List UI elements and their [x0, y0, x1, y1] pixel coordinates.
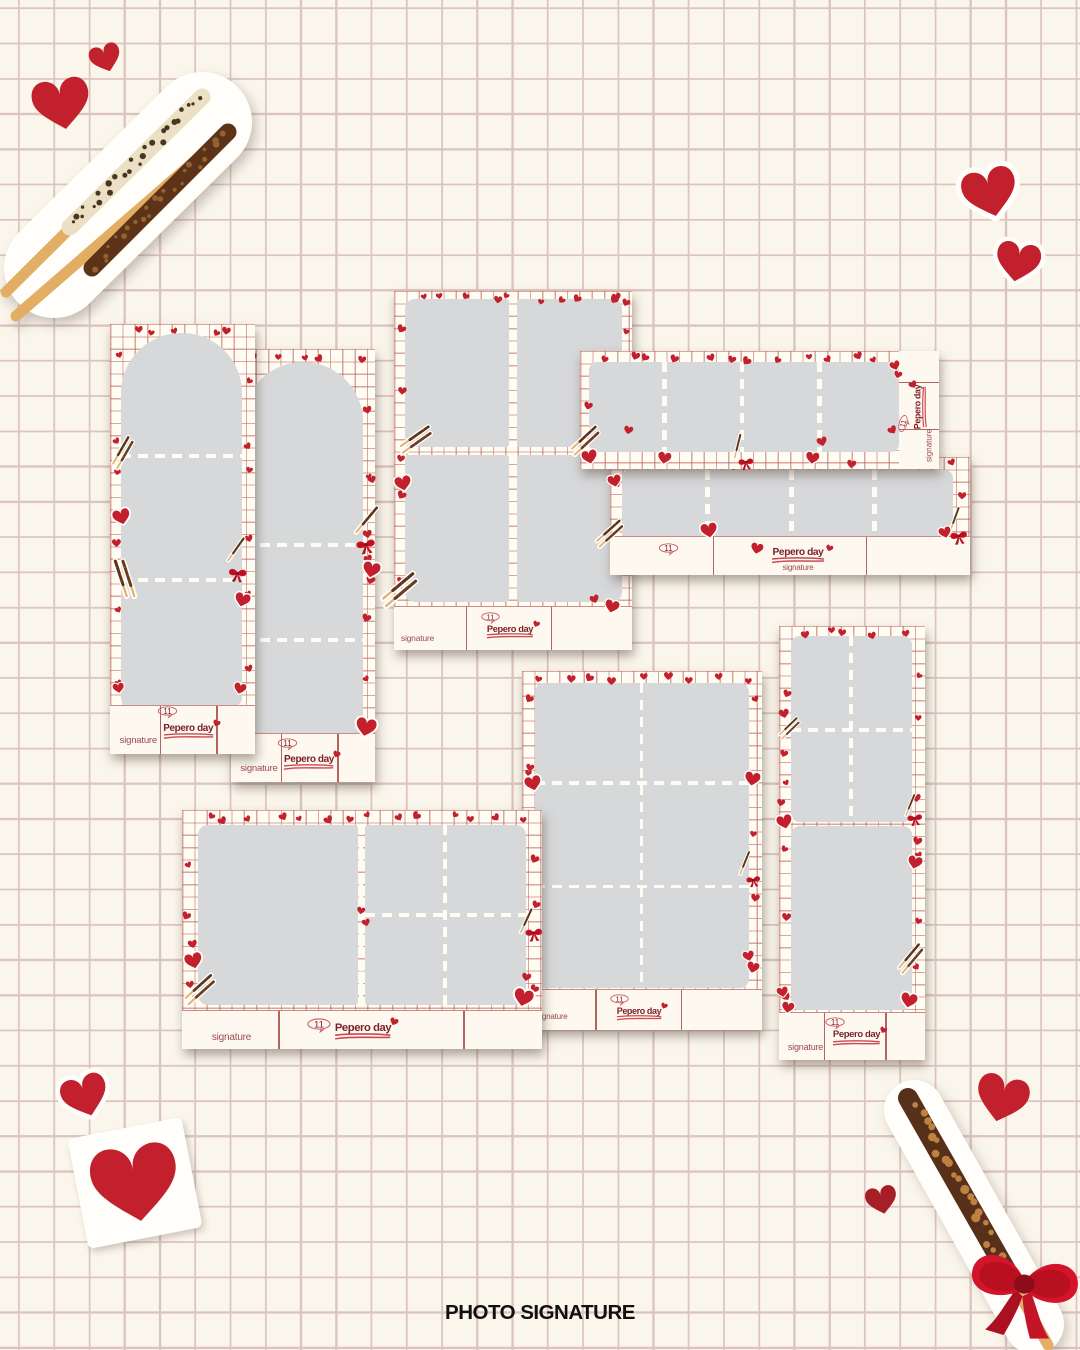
svg-text:11: 11 — [830, 1018, 839, 1027]
svg-text:11: 11 — [314, 1019, 324, 1030]
svg-text:11: 11 — [486, 612, 494, 621]
svg-text:11: 11 — [283, 738, 292, 747]
svg-text:11: 11 — [664, 544, 673, 553]
svg-text:11: 11 — [615, 994, 623, 1003]
svg-text:11: 11 — [163, 707, 172, 716]
svg-text:11: 11 — [898, 418, 909, 428]
